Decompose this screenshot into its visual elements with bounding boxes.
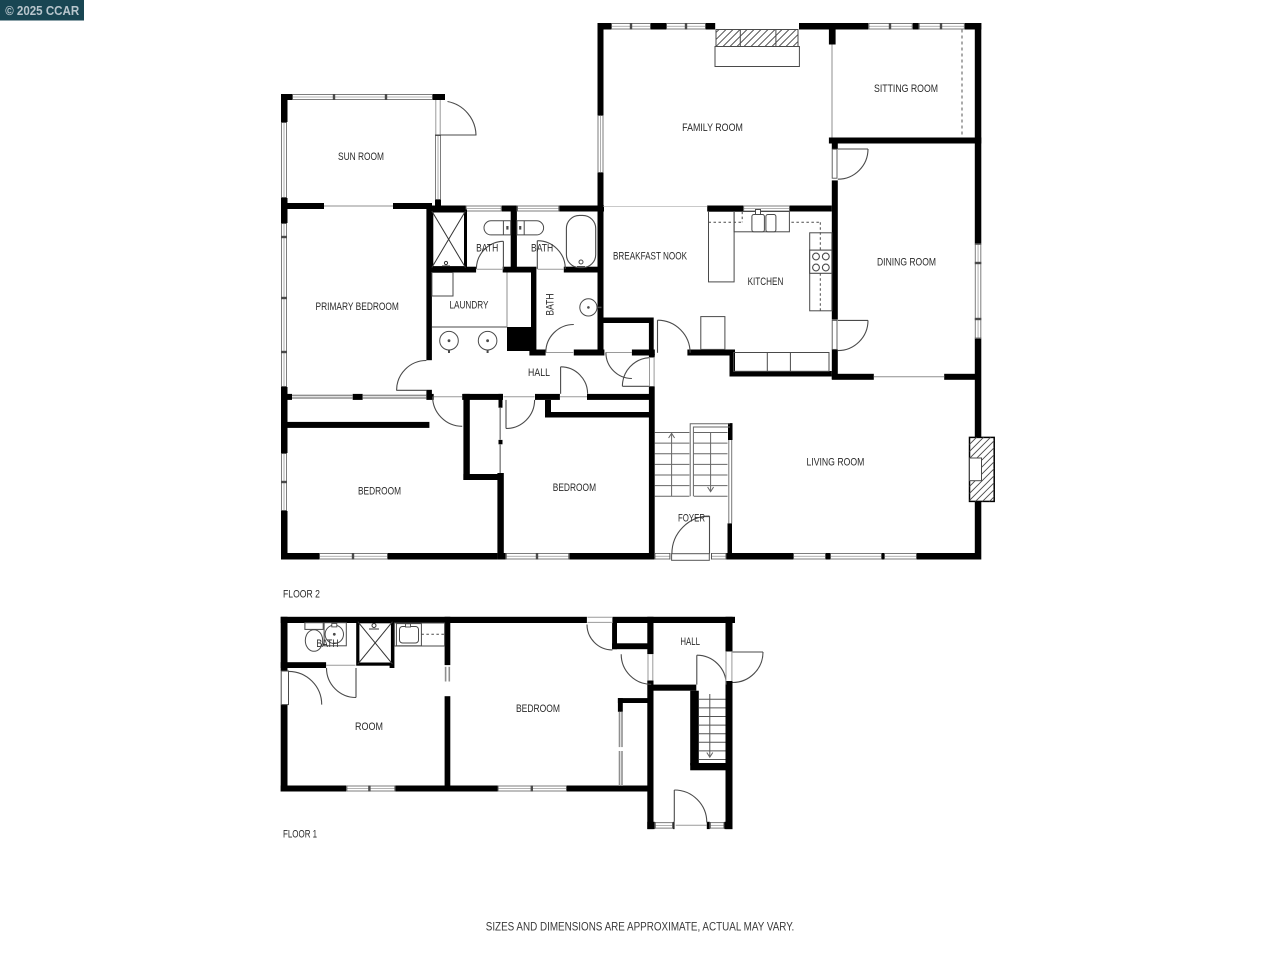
svg-text:BEDROOM: BEDROOM: [516, 703, 560, 715]
svg-text:HALL: HALL: [680, 636, 700, 648]
svg-text:BEDROOM: BEDROOM: [358, 486, 401, 498]
svg-text:BATH: BATH: [476, 243, 498, 255]
svg-text:BATH: BATH: [316, 638, 338, 650]
svg-text:BEDROOM: BEDROOM: [553, 482, 596, 494]
svg-text:HALL: HALL: [528, 367, 550, 379]
svg-text:KITCHEN: KITCHEN: [748, 276, 784, 288]
svg-text:DINING ROOM: DINING ROOM: [877, 257, 936, 269]
svg-text:SUN ROOM: SUN ROOM: [338, 151, 384, 163]
svg-text:SIZES AND DIMENSIONS ARE APPRO: SIZES AND DIMENSIONS ARE APPROXIMATE, AC…: [486, 920, 795, 934]
svg-text:FOYER: FOYER: [678, 513, 705, 525]
svg-text:BATH: BATH: [531, 243, 553, 255]
svg-text:LIVING ROOM: LIVING ROOM: [807, 457, 865, 469]
svg-text:BATH: BATH: [545, 293, 557, 315]
svg-text:ROOM: ROOM: [355, 721, 383, 733]
svg-text:LAUNDRY: LAUNDRY: [450, 300, 489, 312]
svg-text:PRIMARY BEDROOM: PRIMARY BEDROOM: [316, 301, 399, 313]
svg-text:FAMILY ROOM: FAMILY ROOM: [682, 122, 743, 134]
svg-text:FLOOR 2: FLOOR 2: [283, 589, 320, 601]
svg-text:© 2025 CCAR: © 2025 CCAR: [5, 3, 80, 18]
svg-text:BREAKFAST NOOK: BREAKFAST NOOK: [613, 251, 687, 263]
svg-text:FLOOR 1: FLOOR 1: [283, 829, 317, 841]
svg-text:SITTING ROOM: SITTING ROOM: [874, 83, 938, 95]
